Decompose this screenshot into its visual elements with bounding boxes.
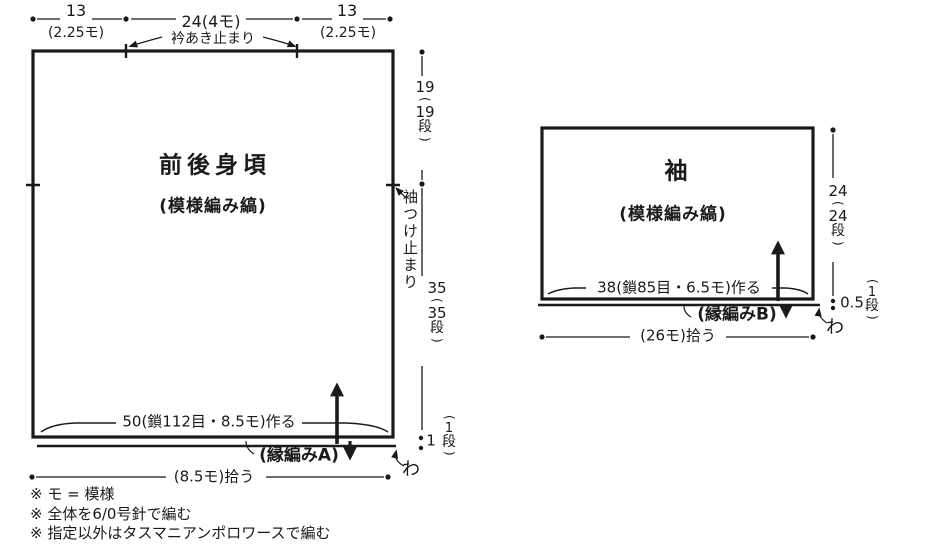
open-paren: ( bbox=[834, 201, 843, 206]
sleeve-edging-leader-curve bbox=[684, 306, 691, 317]
diagram-linework bbox=[0, 0, 930, 554]
body-title: 前後身頃 bbox=[159, 155, 271, 178]
sleeve-height-dim-unit: 段 bbox=[831, 224, 845, 239]
sleeve-title: 袖 bbox=[665, 161, 688, 184]
close-paren: ) bbox=[868, 315, 877, 320]
body-pickup-label: (8.5モ)拾う bbox=[174, 470, 255, 485]
body-upper-dim-unit: 段 bbox=[418, 120, 432, 135]
close-paren: ) bbox=[834, 241, 843, 246]
sleeve-edge-cm: 0.5 bbox=[840, 296, 864, 311]
body-lower-dim: 35 ( 35 段 ) bbox=[427, 280, 446, 345]
sleeve-edging-label: (縁編みB) bbox=[697, 307, 777, 324]
close-paren: ) bbox=[433, 338, 442, 343]
sleeve-pattern-label: (模様編み縞) bbox=[619, 207, 727, 224]
body-top-right-cm: 13 bbox=[337, 3, 357, 19]
close-paren: ) bbox=[445, 451, 454, 456]
knitting-pattern-diagram: 13 (2.25モ) 24(4モ) 衿あき止まり 13 (2.25モ) 前後身頃… bbox=[0, 0, 930, 554]
body-top-right-pattern: (2.25モ) bbox=[320, 26, 376, 40]
body-edge-rows-dim: ( 1 段 ) bbox=[442, 413, 456, 457]
body-armhole-label: 袖つけ止まり bbox=[402, 189, 417, 291]
body-top-center-dim: 24(4モ) bbox=[181, 14, 240, 30]
body-upper-dim-cm: 19 bbox=[415, 79, 434, 95]
sleeve-edge-rows: 1 bbox=[868, 286, 876, 299]
sleeve-pickup-label: (26モ)拾う bbox=[640, 329, 716, 344]
body-edge-cm: 1 bbox=[426, 434, 436, 449]
sleeve-cast-on-label: 38(鎖85目・6.5モ)作る bbox=[597, 281, 761, 296]
body-lower-dim-rows: 35 bbox=[427, 305, 446, 321]
body-outline-rect bbox=[33, 51, 393, 437]
note-yarn: ※ 指定以外はタスマニアンポロワースで編む bbox=[30, 526, 331, 541]
note-pattern-abbreviation: ※ モ = 模様 bbox=[30, 487, 114, 502]
open-paren: ( bbox=[868, 279, 877, 284]
close-paren: ) bbox=[421, 137, 430, 142]
body-outline bbox=[26, 44, 400, 437]
note-hook-size: ※ 全体を6/0号針で編む bbox=[30, 507, 191, 522]
body-edging-leader-curve bbox=[246, 441, 254, 454]
sleeve-round-label: わ bbox=[826, 319, 844, 337]
sleeve-height-dim-rows: 24 bbox=[828, 208, 847, 224]
sleeve-height-dim-cm: 24 bbox=[828, 183, 847, 199]
body-edge-unit: 段 bbox=[442, 435, 456, 449]
body-edging-label: (縁編みA) bbox=[259, 448, 339, 465]
body-top-left-cm: 13 bbox=[66, 3, 86, 19]
body-top-left-pattern: (2.25モ) bbox=[48, 26, 104, 40]
body-cast-on-label: 50(鎖112目・8.5モ)作る bbox=[122, 415, 295, 430]
open-paren: ( bbox=[421, 97, 430, 102]
sleeve-height-dim: 24 ( 24 段 ) bbox=[828, 183, 847, 248]
sleeve-edge-unit: 段 bbox=[865, 299, 879, 313]
body-edge-rows: 1 bbox=[445, 422, 453, 435]
body-pattern-label: (模様編み縞) bbox=[159, 199, 267, 216]
body-round-label: わ bbox=[402, 461, 420, 479]
open-paren: ( bbox=[433, 298, 442, 303]
sleeve-edge-rows-dim: ( 1 段 ) bbox=[865, 277, 879, 321]
body-neckline-label: 衿あき止まり bbox=[171, 32, 255, 46]
body-upper-dim: 19 ( 19 段 ) bbox=[415, 79, 434, 144]
body-lower-dim-unit: 段 bbox=[430, 321, 444, 336]
body-upper-dim-rows: 19 bbox=[415, 104, 434, 120]
open-paren: ( bbox=[445, 415, 454, 420]
body-lower-dim-cm: 35 bbox=[427, 280, 446, 296]
